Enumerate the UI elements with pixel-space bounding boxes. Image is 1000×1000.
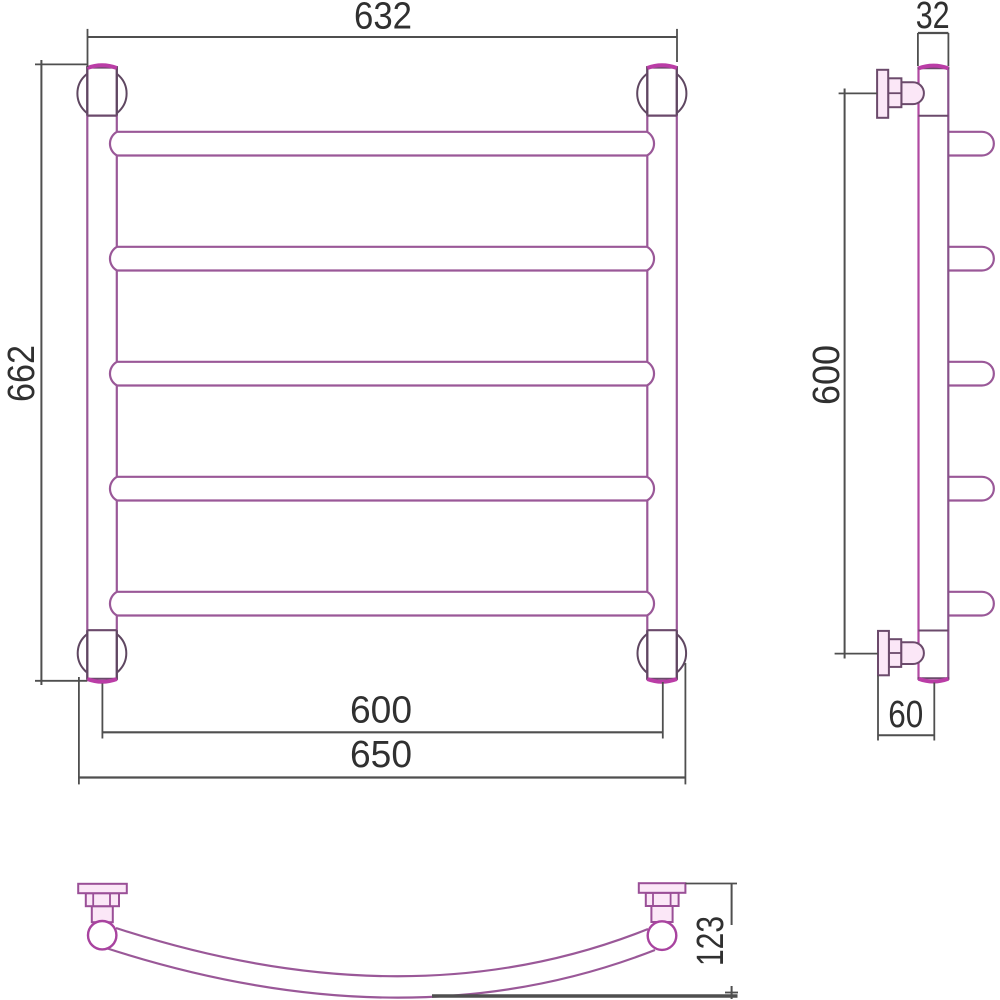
svg-text:650: 650 xyxy=(350,734,412,776)
svg-text:123: 123 xyxy=(690,916,732,966)
svg-text:662: 662 xyxy=(1,345,43,402)
svg-text:60: 60 xyxy=(888,694,923,736)
svg-text:600: 600 xyxy=(806,345,848,405)
svg-text:632: 632 xyxy=(354,0,412,38)
svg-text:600: 600 xyxy=(350,690,412,732)
svg-text:32: 32 xyxy=(916,0,950,37)
